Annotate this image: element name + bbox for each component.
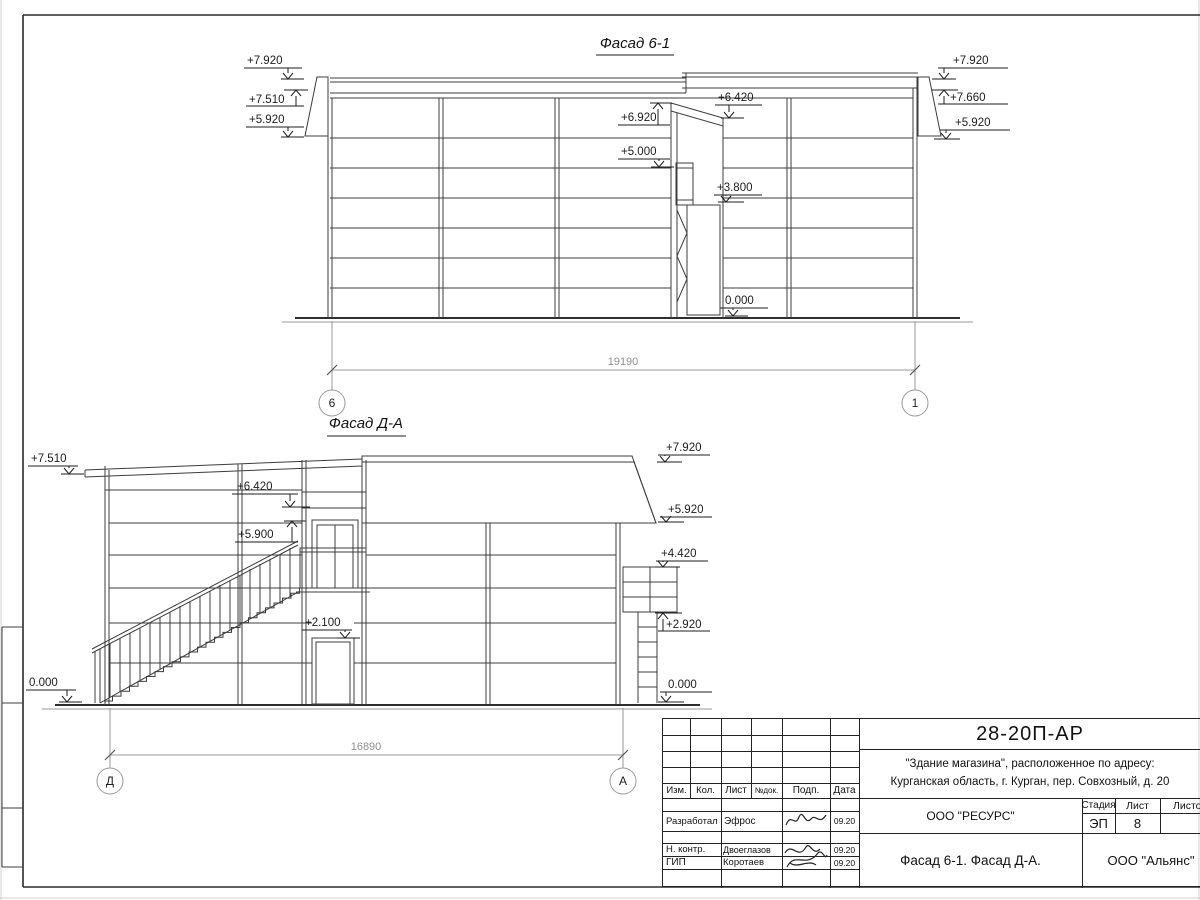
roof-end-right: [918, 77, 941, 136]
mark-value: +5.000: [621, 146, 657, 158]
mark-value: 0.000: [29, 677, 58, 689]
axis-bubble: 1: [902, 390, 928, 416]
object-description: "Здание магазина", расположенное по адре…: [859, 749, 1200, 798]
elevation-mark: +7.920: [657, 442, 710, 462]
mark-value: +2.100: [305, 617, 341, 629]
sheet-number: 8: [1115, 813, 1160, 833]
elevation-mark: 0.000: [720, 295, 768, 316]
roof-end-left: [305, 77, 328, 136]
row-date: 09.20: [830, 843, 859, 856]
row-role: Разработал: [666, 811, 720, 831]
elevation-mark: +6.920: [618, 103, 672, 125]
facade-d-a-title: Фасад Д-А: [329, 415, 403, 432]
mark-value: +4.420: [661, 548, 697, 560]
mark-value: +5.920: [955, 117, 991, 129]
signature: [783, 809, 829, 831]
col-header-izm: Изм.: [663, 783, 690, 798]
dimension-value: 16890: [351, 741, 382, 753]
elevation-mark: +3.800: [714, 182, 762, 202]
mark-value: +6.420: [237, 481, 273, 493]
handrail: [92, 541, 298, 703]
elevation-mark: +5.920: [658, 504, 712, 522]
title-block: Изм. Кол. Лист №док. Подп. Дата Разработ…: [662, 718, 1200, 887]
roof-outline: [362, 456, 656, 523]
building-6-1: [282, 73, 973, 322]
binding-column: [2, 627, 23, 867]
balusters: [100, 548, 290, 703]
object-line2: Курганская область, г. Курган, пер. Совх…: [891, 774, 1170, 792]
panel-bands: [330, 138, 913, 288]
mark-value: +7.920: [953, 55, 989, 67]
elevation-mark: +7.510: [246, 90, 308, 106]
landing-railing: [676, 163, 693, 205]
stair-braces: [677, 210, 687, 302]
stage-value: ЭП: [1082, 813, 1115, 833]
elevation-mark: +4.420: [655, 548, 708, 567]
roof-shingles: [362, 462, 656, 523]
building-d-a: [42, 456, 712, 709]
axis-label: Д: [106, 774, 114, 788]
document-code: 28-20П-АР: [859, 719, 1200, 749]
facade-6-1: Фасад 6-1 +7.920 +7.510 +5.920 +: [244, 35, 1010, 416]
signature: [782, 841, 829, 871]
elevation-mark: +2.100: [302, 617, 360, 638]
sheets-label: Листов: [1160, 798, 1200, 813]
col-header-podp: Подп.: [782, 783, 830, 798]
col-header-kol: Кол.: [690, 783, 721, 798]
row-role: ГИП: [666, 856, 720, 869]
mark-value: +7.660: [950, 92, 986, 104]
drawing-sheet: Фасад 6-1 +7.920 +7.510 +5.920 +: [0, 0, 1200, 900]
elevation-mark: +7.920: [932, 55, 1008, 79]
stair-canopy: [671, 103, 723, 126]
external-stair: [92, 541, 300, 703]
elevation-mark: +5.900: [235, 521, 306, 542]
row-role: Н. контр.: [666, 843, 720, 856]
elevation-mark: +6.420: [232, 481, 310, 507]
mark-value: +7.920: [666, 442, 702, 454]
stair-treads: [687, 205, 720, 315]
entrance-door: [312, 638, 354, 704]
axis-bubble: Д: [97, 768, 123, 794]
sheet-label: Лист: [1115, 798, 1160, 813]
row-name: Коротаев: [723, 856, 781, 869]
elevation-mark: +7.920: [244, 55, 304, 79]
elevation-mark: +6.420: [715, 92, 762, 118]
mark-value: 0.000: [668, 679, 697, 691]
dimension-value: 19190: [608, 356, 639, 368]
mark-value: +5.900: [238, 529, 274, 541]
sheet-title: Фасад 6-1. Фасад Д-А.: [859, 833, 1082, 888]
mark-value: +5.920: [249, 114, 285, 126]
col-header-ndok: №док.: [751, 783, 782, 798]
object-line1: "Здание магазина", расположенное по адре…: [905, 756, 1154, 774]
mark-value: +7.510: [249, 94, 285, 106]
elevation-mark: 0.000: [26, 677, 82, 702]
company-name: ООО "Альянс": [1082, 833, 1200, 888]
col-header-data: Дата: [830, 783, 859, 798]
mark-value: +2.920: [666, 619, 702, 631]
elevation-mark: +7.510: [28, 453, 84, 474]
axis-label: А: [619, 774, 627, 788]
mark-value: +7.510: [31, 453, 67, 465]
axis-bubble: 6: [319, 390, 345, 416]
elevation-mark: 0.000: [658, 679, 712, 702]
elevation-mark: +5.920: [246, 114, 304, 137]
axis-label: 6: [329, 396, 336, 410]
dimension-d-a: 16890 Д А: [97, 708, 636, 794]
mark-value: +7.920: [247, 55, 283, 67]
axis-label: 1: [912, 396, 919, 410]
stage-label: Стадия: [1082, 798, 1115, 813]
row-name: Двоеглазов: [723, 843, 781, 856]
landing-railing: [300, 548, 366, 588]
col-header-list: Лист: [721, 783, 751, 798]
elevation-mark: +5.000: [618, 146, 674, 167]
axis-bubble: А: [610, 768, 636, 794]
elevation-mark: +5.920: [934, 117, 1010, 139]
row-date: 09.20: [830, 811, 859, 831]
mark-value: +6.920: [621, 112, 657, 124]
mark-value: +5.920: [668, 504, 704, 516]
elevation-marks-6-1: +7.920 +7.510 +5.920 +7.920 +7.660 +5.92…: [244, 55, 1010, 316]
elevation-mark: +7.660: [932, 90, 1008, 104]
org-name: ООО "РЕСУРС": [859, 798, 1082, 833]
stair-tower: [671, 103, 723, 318]
mark-value: 0.000: [725, 295, 754, 307]
mark-value: +6.420: [718, 92, 754, 104]
facade-d-a: Фасад Д-А: [26, 415, 712, 794]
row-date: 09.20: [830, 856, 859, 869]
dimension-6-1: 19190 6 1: [319, 321, 928, 416]
facade-6-1-title: Фасад 6-1: [600, 35, 670, 52]
elevation-mark: +2.920: [655, 613, 710, 631]
row-name: Эфрос: [724, 811, 781, 831]
tower-fascia: [302, 492, 366, 508]
mark-value: +3.800: [717, 182, 753, 194]
